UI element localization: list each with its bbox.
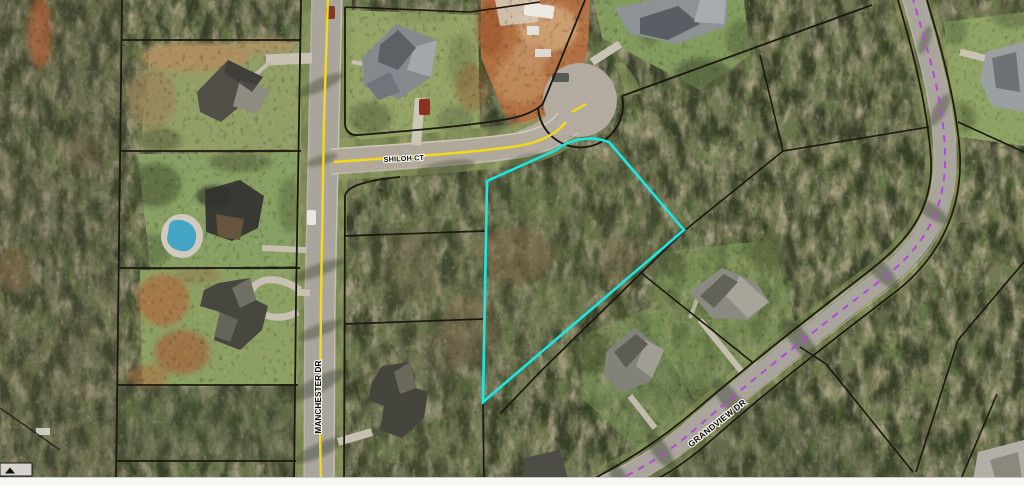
svg-text:MANCHESTER DR: MANCHESTER DR (314, 360, 323, 433)
